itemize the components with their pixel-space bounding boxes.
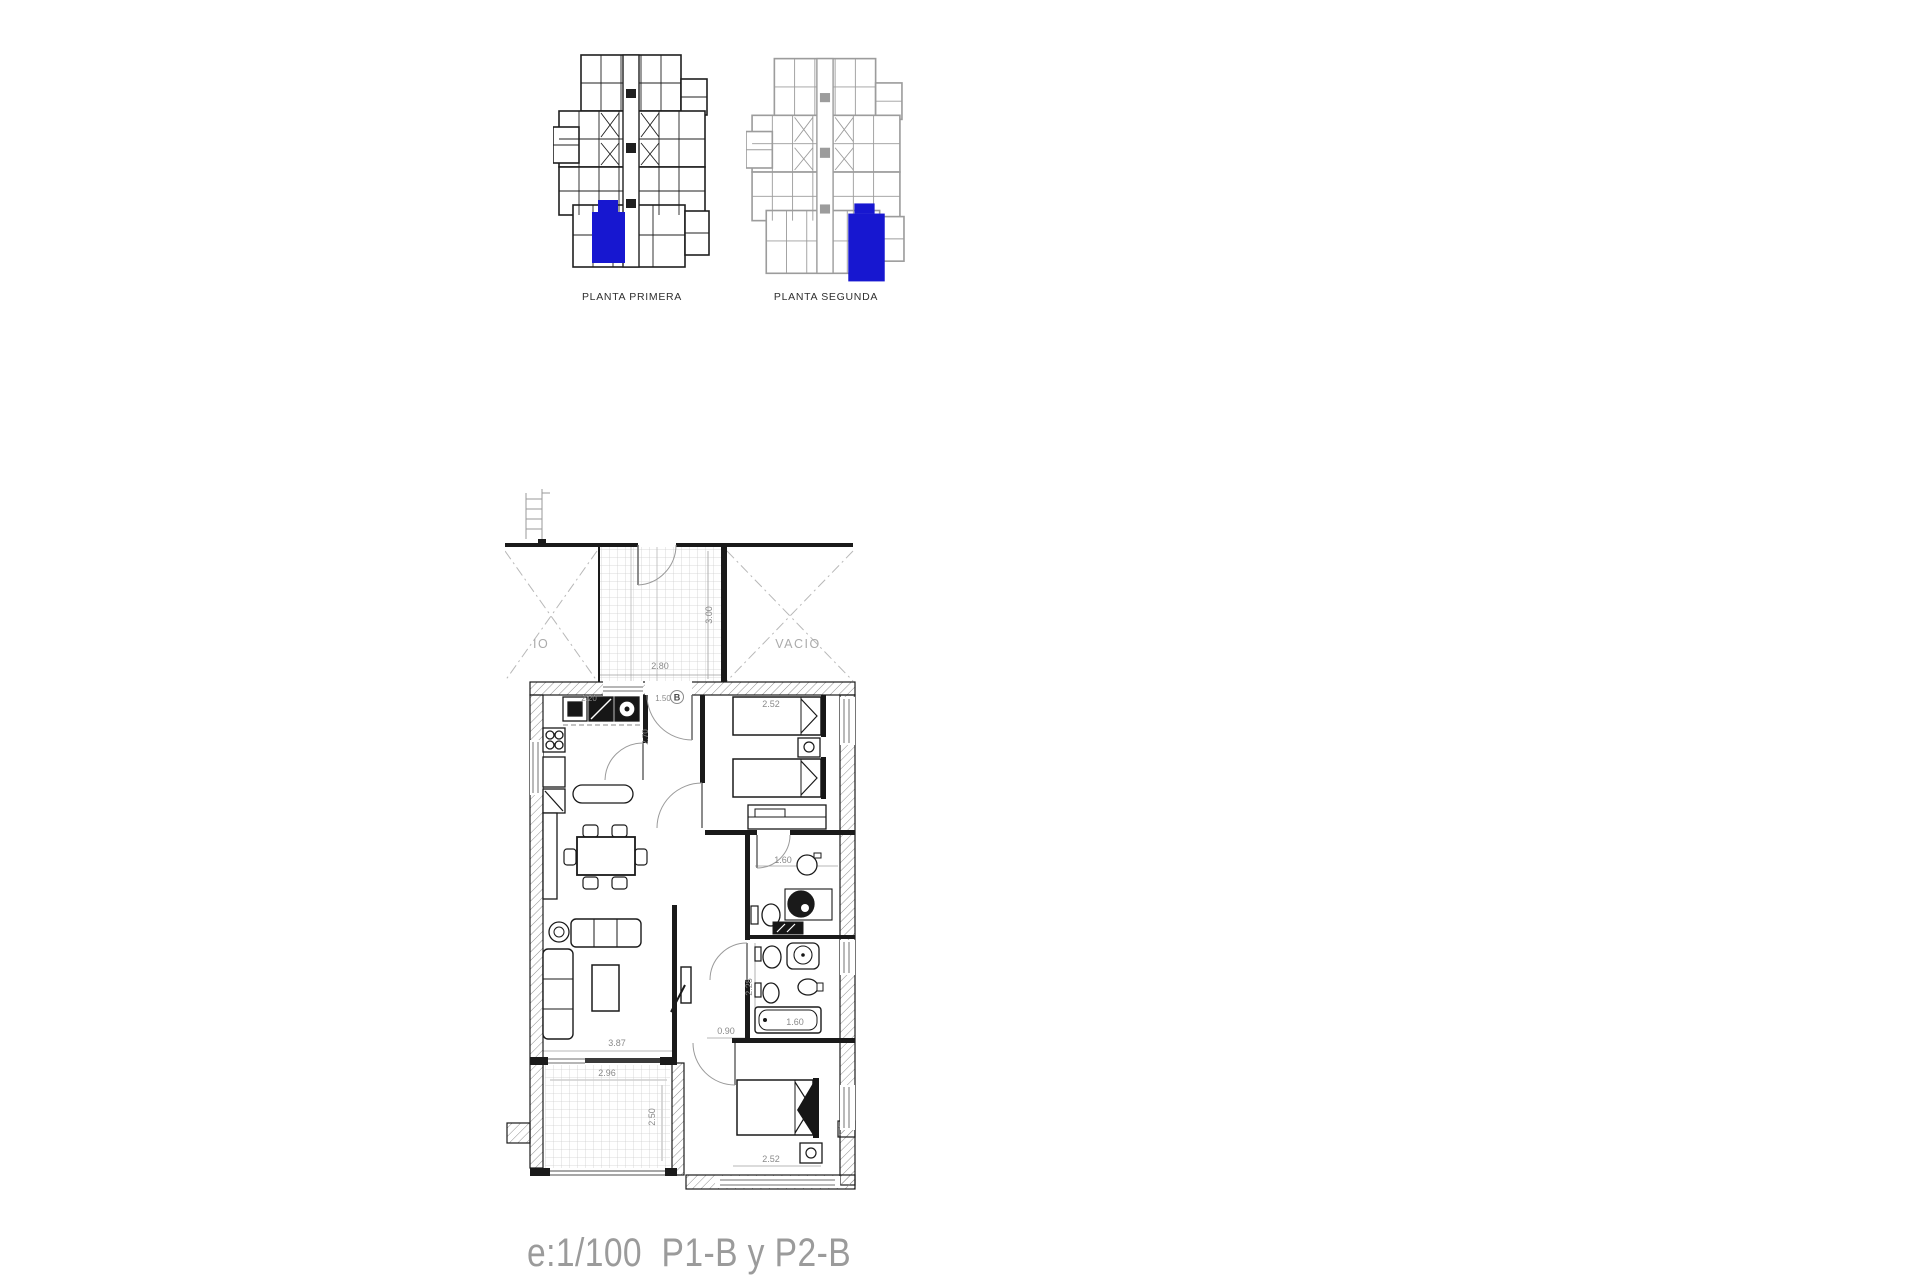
bathroom-1 bbox=[751, 853, 832, 934]
key-plan-planta-primera bbox=[553, 53, 711, 275]
key-plan-1-label: PLANTA PRIMERA bbox=[553, 291, 711, 303]
void-right-area bbox=[727, 551, 853, 681]
key-plan-1-core bbox=[623, 55, 639, 267]
scale-caption: e:1/100 P1-B y P2-B bbox=[527, 1231, 851, 1276]
dim-terrace-top-depth: 3.00 bbox=[704, 606, 714, 624]
key-plan-2-core bbox=[817, 59, 833, 274]
dining-table bbox=[564, 825, 647, 889]
dim-passage-width: 0.90 bbox=[717, 1026, 735, 1036]
dim-terrace-top-width: 2.80 bbox=[651, 661, 669, 671]
unit-marker-letter: B bbox=[674, 693, 681, 703]
kitchen bbox=[543, 697, 641, 813]
unit-marker: B bbox=[671, 691, 684, 704]
key-plan-2-highlighted-unit bbox=[848, 203, 884, 281]
living-room bbox=[543, 919, 641, 1039]
key-plan-planta-segunda bbox=[746, 56, 906, 282]
dim-kitchen-width: 2.20 bbox=[581, 694, 597, 703]
apartment-floor-plan: IO VACIO bbox=[505, 485, 860, 1210]
dim-living-width: 3.87 bbox=[608, 1038, 626, 1048]
void-right-label: VACIO bbox=[775, 637, 820, 651]
plan-sheet: PLANTA PRIMERA PLANTA SEGUNDA IO VACIO bbox=[0, 0, 1920, 1280]
dim-bath2-depth: 2.28 bbox=[744, 978, 754, 996]
key-plan-2-label: PLANTA SEGUNDA bbox=[746, 291, 906, 303]
dim-terrace-bottom-width: 2.96 bbox=[598, 1068, 616, 1078]
bedroom-2 bbox=[737, 1078, 822, 1163]
void-left-label: IO bbox=[533, 637, 549, 651]
dim-bath1-width: 1.60 bbox=[774, 855, 792, 865]
stair-structure bbox=[526, 489, 550, 545]
sideboard bbox=[543, 813, 557, 899]
dim-bathtub-length: 1.60 bbox=[786, 1017, 804, 1027]
dim-terrace-bottom-depth: 2.50 bbox=[647, 1108, 657, 1126]
void-left-area bbox=[505, 551, 597, 681]
dim-bedroom1-width: 2.52 bbox=[762, 699, 780, 709]
bedroom-1 bbox=[733, 695, 826, 829]
dim-entrance-width: 1.50 bbox=[655, 694, 671, 703]
dim-hall-depth: 2.70 bbox=[641, 729, 650, 745]
dim-bedroom2-width: 2.52 bbox=[762, 1154, 780, 1164]
